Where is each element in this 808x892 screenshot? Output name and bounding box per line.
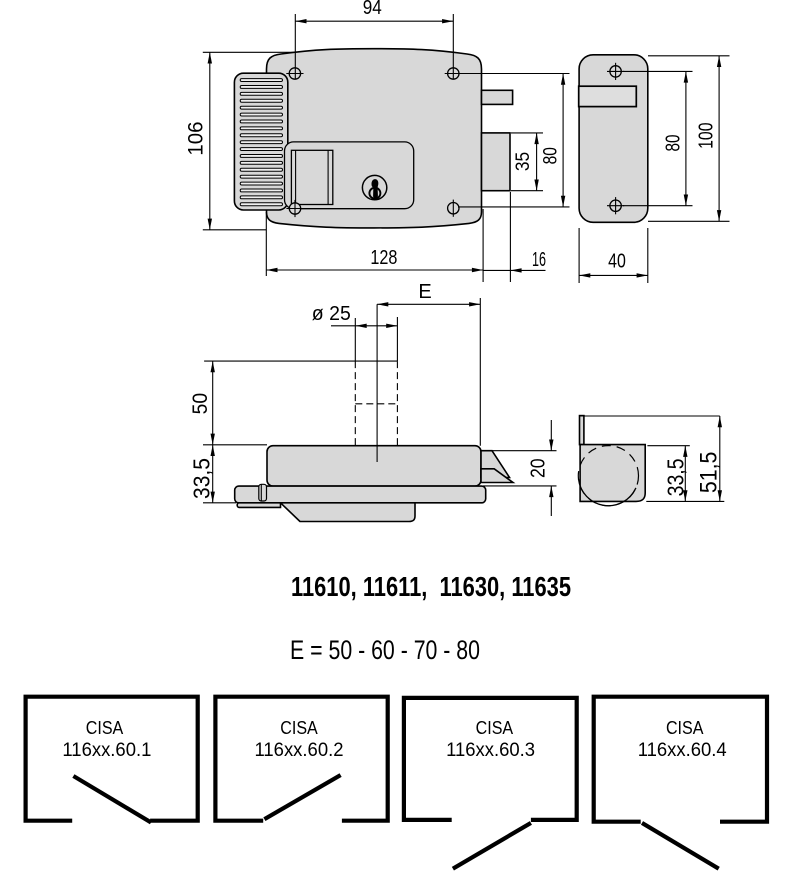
svg-text:CISA: CISA [86,718,124,738]
svg-text:116xx.60.3: 116xx.60.3 [446,740,535,761]
svg-text:35: 35 [513,152,534,171]
svg-text:CISA: CISA [476,718,514,738]
svg-text:50: 50 [188,393,212,415]
svg-text:ø 25: ø 25 [312,303,351,325]
svg-text:33,5: 33,5 [663,458,689,496]
svg-text:116xx.60.4: 116xx.60.4 [638,740,727,761]
svg-text:E = 50 - 60 - 70 - 80: E = 50 - 60 - 70 - 80 [290,635,480,665]
svg-text:20: 20 [527,458,550,478]
svg-text:40: 40 [608,251,626,273]
svg-text:80: 80 [539,147,561,164]
svg-text:116xx.60.1: 116xx.60.1 [62,740,151,761]
svg-text:94: 94 [363,0,382,19]
svg-text:16: 16 [532,248,546,271]
svg-text:51,5: 51,5 [695,452,722,494]
svg-text:116xx.60.2: 116xx.60.2 [255,740,344,761]
svg-text:100: 100 [695,123,717,149]
svg-text:CISA: CISA [666,718,704,738]
svg-text:33,5: 33,5 [189,458,215,499]
svg-text:CISA: CISA [280,718,318,738]
svg-text:E: E [418,281,431,303]
svg-text:11610, 11611, 11630, 11635: 11610, 11611, 11630, 11635 [291,571,571,602]
svg-text:106: 106 [184,122,208,156]
svg-text:128: 128 [370,247,397,269]
svg-text:80: 80 [663,135,685,152]
